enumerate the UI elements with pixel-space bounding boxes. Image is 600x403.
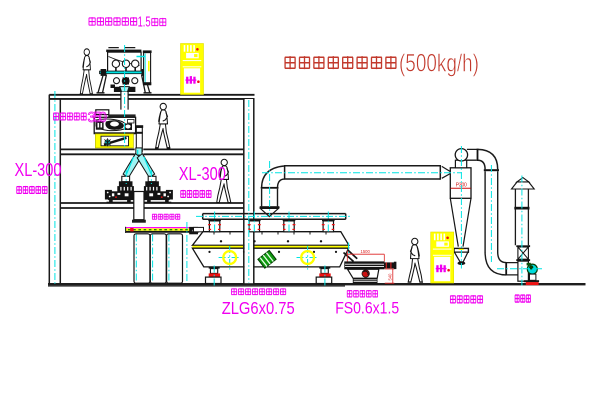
svg-text:ZLG6x0.75: ZLG6x0.75 [222,298,295,318]
svg-text:1.5: 1.5 [138,14,151,31]
svg-text:350: 350 [88,110,108,126]
svg-text:(500kg/h): (500kg/h) [399,50,479,78]
svg-text:FS0.6x1.5: FS0.6x1.5 [335,300,399,318]
svg-text:XL-300: XL-300 [179,163,226,184]
svg-text:XL-300: XL-300 [15,159,62,180]
svg-text:540: 540 [387,273,392,281]
svg-text:1500: 1500 [361,249,371,254]
